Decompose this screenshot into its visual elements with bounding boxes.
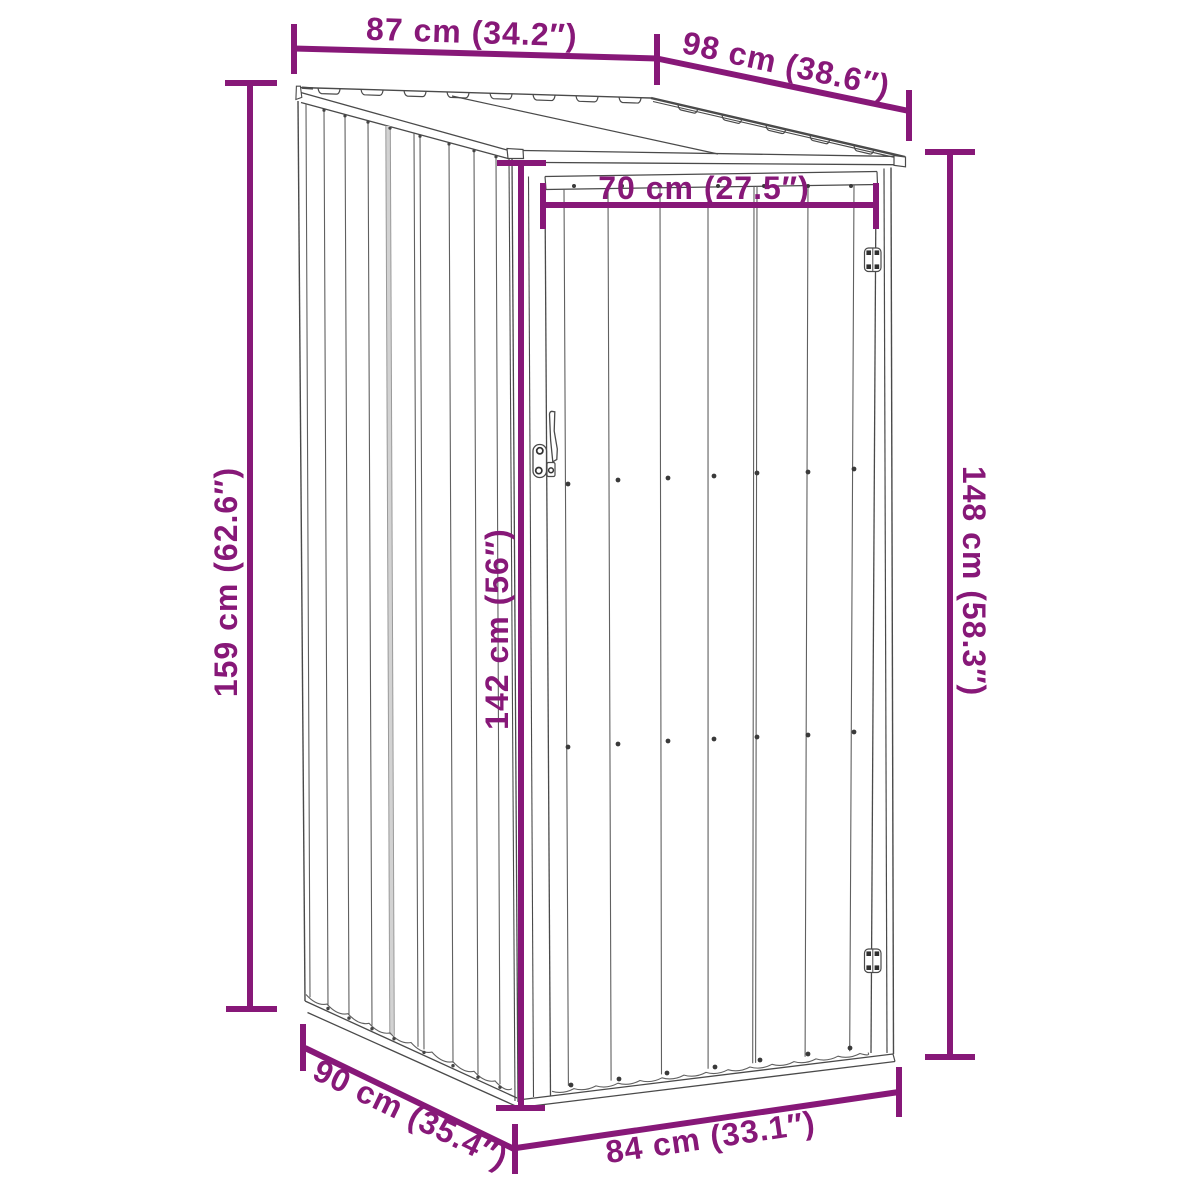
svg-text:142 cm (56″): 142 cm (56″) [479,528,515,730]
svg-text:87 cm (34.2″): 87 cm (34.2″) [366,11,579,54]
svg-text:70 cm (27.5″): 70 cm (27.5″) [598,170,810,206]
svg-text:148 cm (58.3″): 148 cm (58.3″) [956,466,992,696]
svg-text:159 cm (62.6″): 159 cm (62.6″) [208,467,244,697]
